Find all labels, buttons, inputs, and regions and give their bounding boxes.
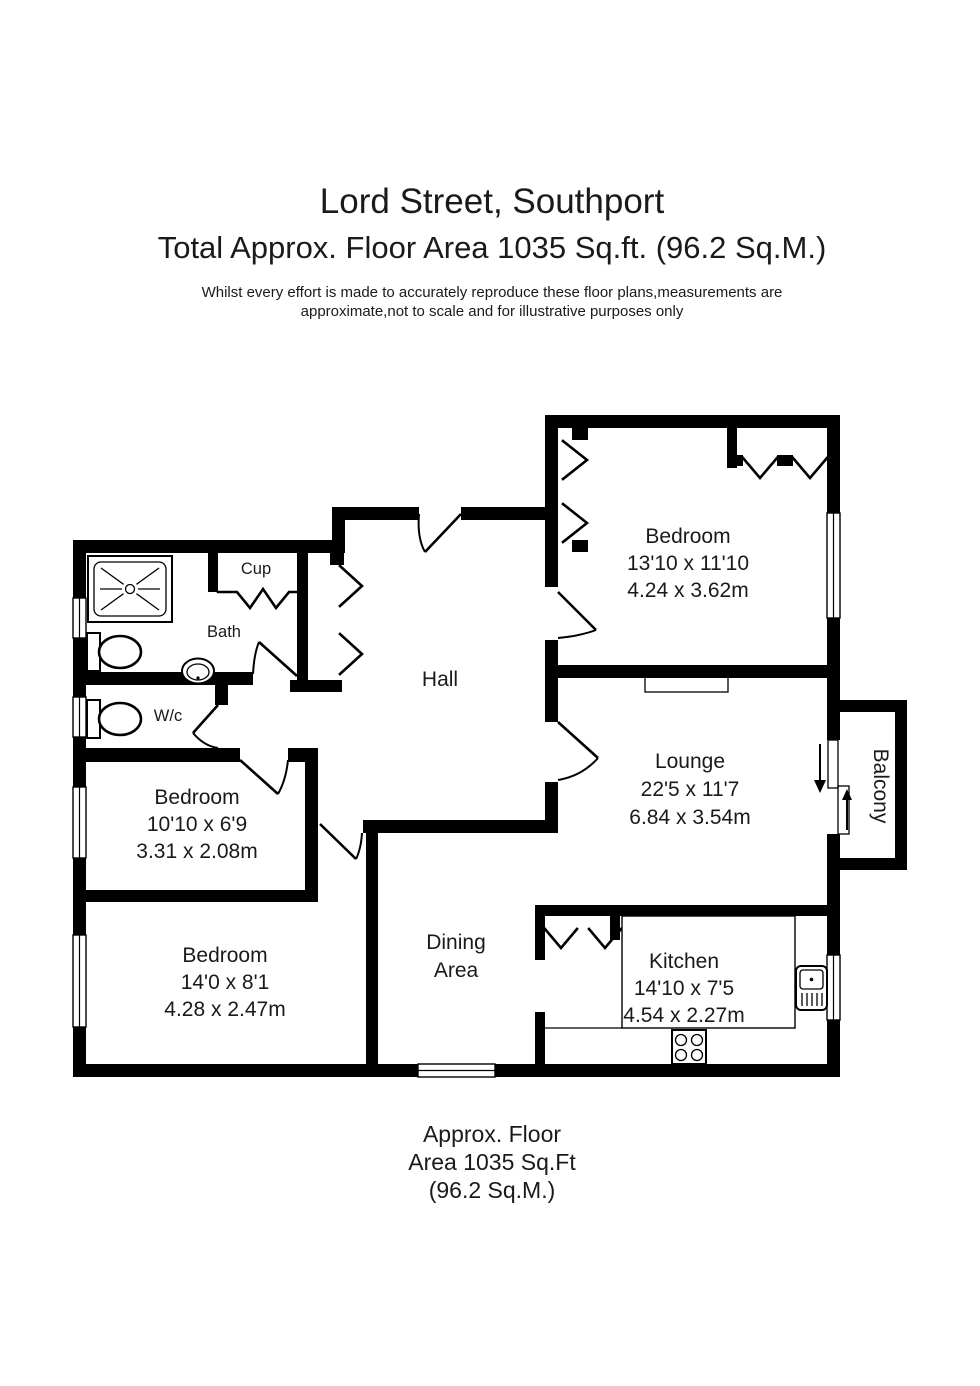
floorplan-page: Lord Street, Southport Total Approx. Flo… xyxy=(0,0,980,1386)
kitchen-sink-icon xyxy=(796,966,827,1010)
wall-cup-right xyxy=(297,552,308,690)
wall-hall-lounge-mid xyxy=(545,640,558,722)
footer-line1: Approx. Floor xyxy=(423,1121,561,1147)
window xyxy=(73,598,86,638)
lounge-imperial: 22'5 x 11'7 xyxy=(641,778,740,801)
entry-door xyxy=(419,514,461,552)
bedroom2-metric: 3.31 x 2.08m xyxy=(136,840,257,863)
toilet-icon xyxy=(87,633,141,671)
slide-direction-up-arrow-icon xyxy=(842,789,852,830)
wall-closet-stub-top xyxy=(330,553,344,565)
hall-closet-chevron-icon xyxy=(340,566,362,606)
wall-top-bedroom-block xyxy=(545,415,840,428)
wall-wc-right xyxy=(215,685,228,705)
window xyxy=(73,697,86,737)
lounge-door xyxy=(558,722,598,780)
dining-label-line2: Area xyxy=(434,959,479,982)
window xyxy=(73,787,86,858)
wall-bedroom2-bedroom3 xyxy=(73,890,318,902)
kitchen-metric: 4.54 x 2.27m xyxy=(623,1004,744,1027)
wall-bedroom-block-left-upper xyxy=(545,415,558,587)
bedroom1-metric: 4.24 x 3.62m xyxy=(627,579,748,602)
wall-hall-top-right xyxy=(461,507,558,520)
cup-label: Cup xyxy=(241,560,271,578)
wall-hall-top-left xyxy=(332,507,419,520)
wall-bath-bottom xyxy=(73,672,253,685)
bedroom2-door xyxy=(240,760,288,794)
balcony-label: Balcony xyxy=(869,749,892,824)
hall-closet-chevron-icon xyxy=(340,634,362,674)
slide-direction-down-arrow-icon xyxy=(814,744,826,793)
bedroom1-wardrobe-chevron-icon xyxy=(793,458,827,478)
wall-bedroom2-right xyxy=(305,748,318,902)
wall-bedroom1-closet-stub-bottom xyxy=(572,540,588,552)
wall-hall-dining xyxy=(363,820,547,833)
page-subtitle: Total Approx. Floor Area 1035 Sq.ft. (96… xyxy=(158,230,827,265)
bath-label: Bath xyxy=(207,623,241,641)
wall-closet-bottom xyxy=(290,680,342,692)
disclaimer-line1: Whilst every effort is made to accuratel… xyxy=(202,284,783,301)
window xyxy=(73,935,86,1027)
bedroom1-imperial: 13'10 x 11'10 xyxy=(627,552,749,575)
window xyxy=(827,955,840,1020)
wall-kitchen-left-upper xyxy=(535,905,545,960)
cupboard-zigzag-icon xyxy=(218,589,299,608)
bedroom3-door xyxy=(320,824,362,859)
kitchen-label: Kitchen xyxy=(649,950,719,973)
wall-wardrobe-stub1 xyxy=(727,455,743,466)
wc-door xyxy=(193,705,218,748)
bedroom3-imperial: 14'0 x 8'1 xyxy=(181,971,270,994)
toilet-icon xyxy=(87,700,141,738)
bedroom2-imperial: 10'10 x 6'9 xyxy=(147,813,247,836)
hall-label: Hall xyxy=(422,668,458,691)
kitchen-imperial: 14'10 x 7'5 xyxy=(634,977,734,1000)
hob-icon xyxy=(672,1030,706,1064)
bedroom1-label: Bedroom xyxy=(645,525,730,548)
wall-wardrobe-stub2 xyxy=(777,455,793,466)
wall-balcony-bottom xyxy=(840,858,907,870)
lounge-metric: 6.84 x 3.54m xyxy=(629,806,750,829)
wall-kitchen-left-lower xyxy=(535,1012,545,1064)
bedroom1-wardrobe-chevron-icon xyxy=(563,504,587,542)
bedroom3-metric: 4.28 x 2.47m xyxy=(164,998,285,1021)
dining-label-line1: Dining xyxy=(426,931,486,954)
footer-line2: Area 1035 Sq.Ft xyxy=(408,1149,576,1175)
sliding-patio-door xyxy=(814,740,852,834)
bedroom3-label: Bedroom xyxy=(182,944,267,967)
lounge-label: Lounge xyxy=(655,750,725,773)
footer-line3: (96.2 Sq.M.) xyxy=(429,1177,556,1203)
wall-kitchen-top xyxy=(535,905,840,916)
floor-plan: Lord Street, Southport Total Approx. Flo… xyxy=(0,0,980,1386)
wall-wc-bottom-left xyxy=(73,748,240,762)
wc-label: W/c xyxy=(154,707,182,725)
page-title: Lord Street, Southport xyxy=(320,182,665,221)
shower-icon xyxy=(88,556,172,622)
disclaimer-line2: approximate,not to scale and for illustr… xyxy=(301,303,684,320)
bedroom2-label: Bedroom xyxy=(154,786,239,809)
bath-door xyxy=(253,642,297,676)
wall-bedroom1-closet-stub-top xyxy=(572,428,588,440)
window xyxy=(827,513,840,618)
wall-balcony-right xyxy=(895,700,907,870)
sink-icon xyxy=(182,659,214,684)
footer: Approx. Floor Area 1035 Sq.Ft (96.2 Sq.M… xyxy=(408,1121,576,1203)
wall-shower-cup-stub xyxy=(208,545,218,592)
window xyxy=(418,1064,495,1077)
bedroom1-wardrobe-chevron-icon xyxy=(563,441,587,479)
wall-dining-left xyxy=(366,820,378,1064)
kitchen-doorway-chevron-icon xyxy=(545,929,577,948)
bedroom1-wardrobe-chevron-icon xyxy=(743,458,777,478)
bedroom1-door xyxy=(558,592,596,638)
